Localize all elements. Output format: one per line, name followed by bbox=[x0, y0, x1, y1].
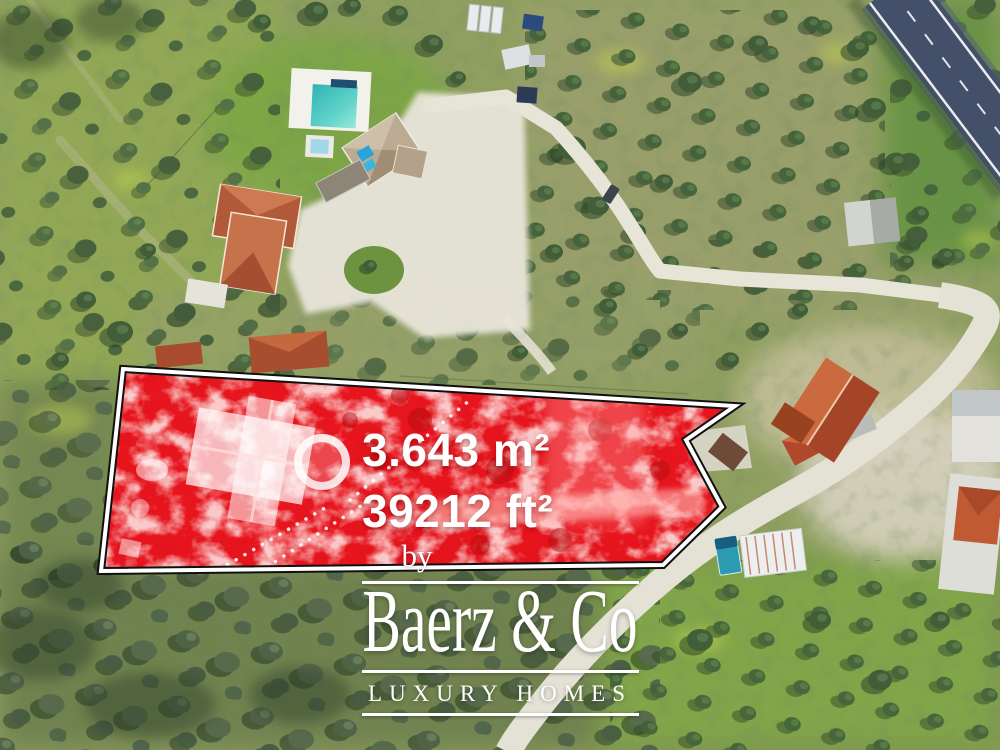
plot-area-label: 3.643 m² 39212 ft² bbox=[362, 420, 553, 542]
grey-shed bbox=[844, 197, 900, 246]
area-square-feet: 39212 ft² bbox=[362, 481, 553, 542]
red-shed-2 bbox=[249, 331, 330, 374]
trailers bbox=[467, 4, 504, 33]
aerial-property-photo: 3.643 m² 39212 ft² by Baerz & Co LUXURY … bbox=[0, 0, 1000, 750]
aerial-scene bbox=[0, 0, 1000, 750]
area-square-meters: 3.643 m² bbox=[362, 420, 553, 481]
corrugated-roof bbox=[740, 528, 807, 577]
dark-car bbox=[516, 86, 537, 103]
white-building-right bbox=[952, 390, 1000, 462]
round-patio bbox=[298, 438, 346, 486]
blue-tarp bbox=[522, 14, 544, 32]
